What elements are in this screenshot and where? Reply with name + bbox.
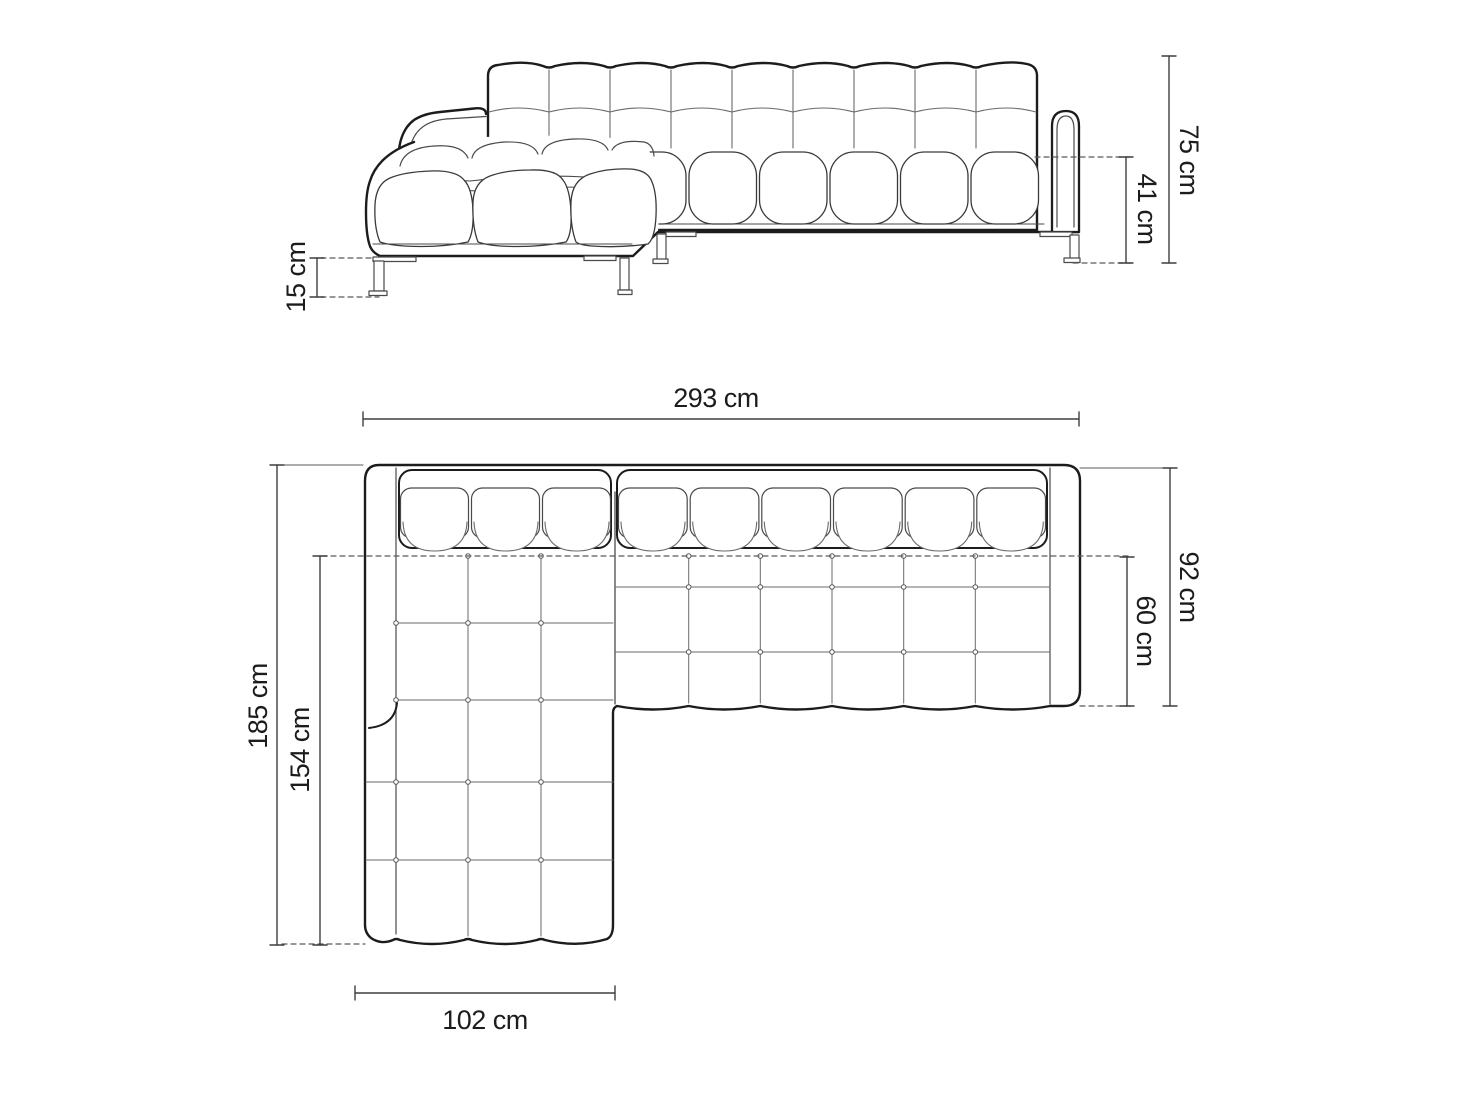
- chaise-cushion: [571, 169, 656, 247]
- body-depth-label: 92 cm: [1174, 551, 1204, 622]
- sofa-dimension-diagram: 75 cm 41 cm 15 cm: [0, 0, 1459, 1094]
- seat-cushion: [830, 152, 898, 224]
- leg-post: [657, 234, 666, 260]
- chaise-cushion: [473, 170, 571, 247]
- right-arm: [1052, 111, 1079, 232]
- seat-depth-label: 60 cm: [1131, 595, 1161, 666]
- chaise-cushion: [375, 171, 473, 247]
- total-width-label: 293 cm: [673, 383, 759, 413]
- dimension-total-height: [1162, 56, 1176, 263]
- dimension-chaise-depth: [313, 556, 327, 945]
- chaise-depth-label: 154 cm: [285, 707, 315, 793]
- technical-drawing-canvas: 75 cm 41 cm 15 cm: [0, 0, 1459, 1094]
- chaise-width-label: 102 cm: [442, 1005, 528, 1035]
- seat-cushion: [760, 152, 828, 224]
- dimension-chaise-width: [355, 986, 615, 1000]
- leg-bracket: [584, 256, 616, 261]
- dimension-leg-height: [310, 258, 324, 297]
- plan-back-cushions: [401, 488, 1046, 551]
- leg-foot: [369, 291, 387, 296]
- leg-foot: [653, 259, 668, 264]
- back-cushion-pockets: [403, 522, 1043, 551]
- dimension-seat-height: [1119, 157, 1133, 263]
- dimension-total-width: [363, 412, 1079, 426]
- seat-cushion: [971, 152, 1039, 224]
- leg-bracket: [1040, 232, 1072, 237]
- total-height-label: 75 cm: [1174, 124, 1204, 195]
- seat-height-label: 41 cm: [1132, 173, 1162, 244]
- chaise-front-cushions: [375, 169, 656, 247]
- leg-post: [620, 258, 629, 290]
- total-depth-label: 185 cm: [243, 663, 273, 749]
- leg-post: [374, 261, 384, 291]
- leg-height-label: 15 cm: [281, 241, 311, 312]
- leg-post: [1070, 235, 1079, 259]
- leg-foot: [618, 290, 632, 295]
- seat-cushion: [901, 152, 969, 224]
- leg-foot: [1064, 258, 1080, 263]
- leg-bracket: [666, 232, 696, 237]
- front-elevation-view: 75 cm 41 cm 15 cm: [281, 56, 1204, 313]
- seat-cushion: [689, 152, 757, 224]
- top-plan-view: 293 cm 185 cm 154 cm 92 cm 60 cm: [243, 383, 1204, 1035]
